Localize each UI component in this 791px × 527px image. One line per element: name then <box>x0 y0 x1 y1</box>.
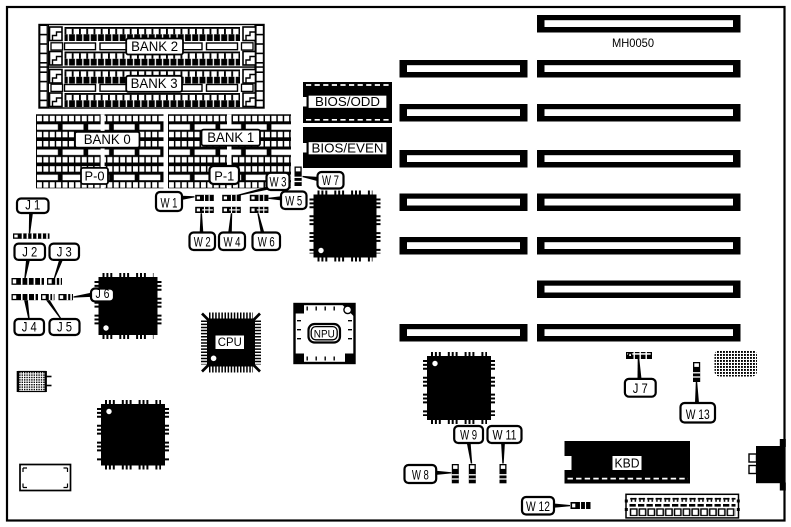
svg-text:CPU: CPU <box>218 337 242 349</box>
svg-text:W 8: W 8 <box>412 467 429 482</box>
svg-text:J 1: J 1 <box>25 197 40 212</box>
svg-text:W 7: W 7 <box>322 173 339 188</box>
svg-text:NPU: NPU <box>314 328 335 340</box>
svg-text:J 3: J 3 <box>57 244 72 259</box>
svg-text:W 3: W 3 <box>270 174 287 189</box>
svg-text:J 2: J 2 <box>22 244 37 259</box>
svg-text:BANK 1: BANK 1 <box>207 129 254 145</box>
svg-text:BANK 3: BANK 3 <box>131 75 178 91</box>
svg-text:W 2: W 2 <box>194 234 211 249</box>
svg-text:W 4: W 4 <box>224 234 241 249</box>
svg-text:J 7: J 7 <box>633 381 648 396</box>
svg-text:W 1: W 1 <box>161 195 178 210</box>
svg-text:J 4: J 4 <box>22 319 37 334</box>
svg-text:W 9: W 9 <box>460 427 477 442</box>
svg-text:W 6: W 6 <box>258 234 275 249</box>
svg-text:BIOS/EVEN: BIOS/EVEN <box>312 140 384 155</box>
svg-text:J 6: J 6 <box>96 287 110 301</box>
svg-text:BIOS/ODD: BIOS/ODD <box>315 94 380 109</box>
svg-text:P-1: P-1 <box>214 168 234 183</box>
svg-text:MH0050: MH0050 <box>612 36 654 50</box>
svg-text:W 11: W 11 <box>493 427 517 442</box>
svg-text:BANK 0: BANK 0 <box>84 131 131 147</box>
svg-text:W 12: W 12 <box>526 499 550 514</box>
svg-text:J 5: J 5 <box>57 319 72 334</box>
svg-text:KBD: KBD <box>615 456 640 470</box>
svg-text:W 13: W 13 <box>686 407 710 422</box>
svg-text:W 5: W 5 <box>285 193 302 208</box>
svg-text:P-0: P-0 <box>85 168 105 183</box>
svg-text:BANK 2: BANK 2 <box>131 38 178 54</box>
